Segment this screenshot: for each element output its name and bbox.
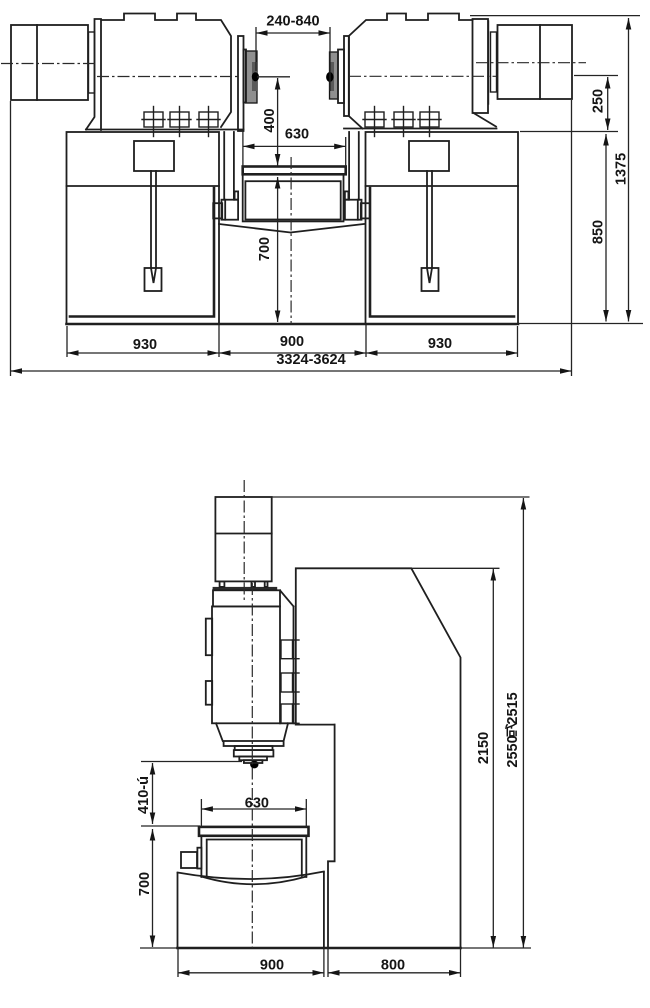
svg-text:850: 850 (591, 220, 607, 244)
svg-text:630: 630 (285, 127, 309, 143)
svg-text:900: 900 (260, 958, 284, 974)
svg-text:240-840: 240-840 (266, 14, 319, 30)
svg-text:250: 250 (591, 89, 607, 113)
svg-text:800: 800 (381, 958, 405, 974)
svg-text:410-ú: 410-ú (136, 776, 152, 814)
svg-text:2550: 2550 (505, 735, 521, 767)
svg-text:930: 930 (428, 336, 452, 352)
svg-text:700: 700 (137, 872, 153, 896)
svg-text:630: 630 (245, 795, 269, 811)
svg-text:930: 930 (133, 337, 157, 353)
svg-text:2515: 2515 (505, 692, 521, 724)
svg-text:900: 900 (280, 334, 304, 350)
svg-text:1375: 1375 (614, 153, 630, 185)
svg-text:400: 400 (262, 108, 278, 132)
svg-text:2150: 2150 (476, 732, 492, 764)
svg-text:700: 700 (257, 237, 273, 261)
svg-text:3324-3624: 3324-3624 (276, 352, 345, 368)
